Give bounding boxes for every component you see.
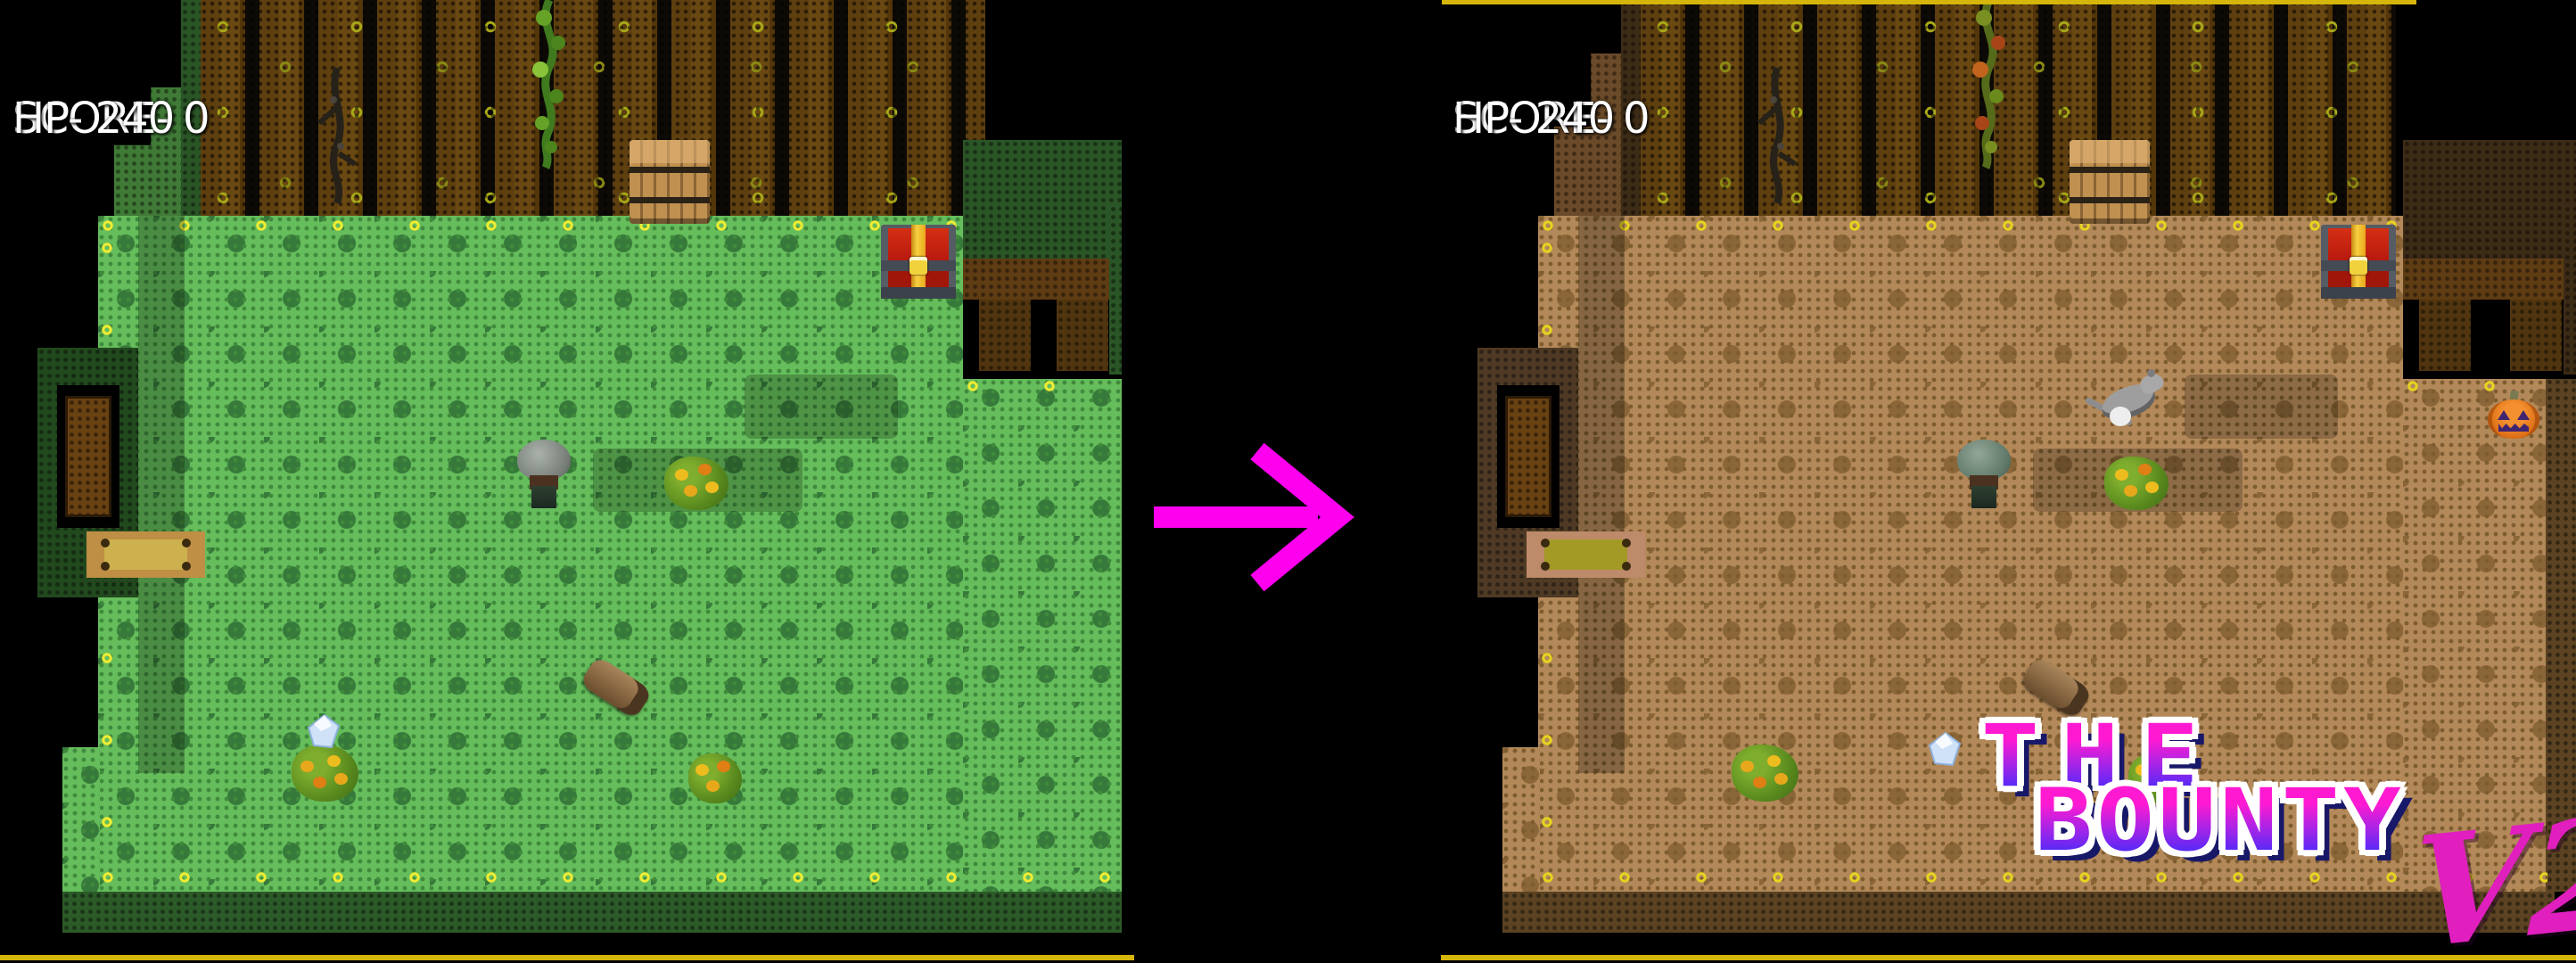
flower-bush-icon: [688, 753, 742, 803]
barrel-icon: [2070, 140, 2150, 224]
flower-bush-icon: [1732, 745, 1798, 802]
door-mat: [1527, 531, 1645, 578]
bottom-accent-line-left: [0, 955, 1134, 960]
flower-bush-icon: [2104, 457, 2169, 510]
player-body: [531, 486, 556, 508]
pumpkin-icon: [2488, 391, 2541, 440]
comparison-scene: SCORE- 0 HP- 240: [0, 0, 2576, 963]
autumn-vine-icon: [1950, 0, 2029, 169]
door: [57, 385, 119, 528]
tilled-soil-patch: [2185, 374, 2338, 439]
treasure-chest-icon: [881, 225, 956, 299]
flower-bush-icon: [292, 745, 358, 802]
floor-bottom-notch: [1502, 747, 1540, 892]
player-body: [1971, 486, 1996, 508]
bottom-accent-line-right: [1441, 955, 2576, 960]
floor-bottom-notch: [62, 747, 100, 892]
player-character: [1957, 440, 2011, 508]
hp-text: HP- 240: [1453, 93, 1614, 145]
crystal-gem-icon: [1924, 731, 1967, 769]
door-mat-center: [104, 539, 187, 570]
floor-dots-top: [100, 218, 974, 234]
tilled-soil-patch: [745, 374, 898, 439]
door-mat: [86, 531, 205, 578]
floor-right-extension: [963, 370, 1122, 892]
player-character: [517, 440, 571, 508]
floor-bottom-border: [1502, 892, 2555, 933]
floor-bottom-border: [62, 892, 1122, 933]
floor-dots-bottom: [100, 870, 1120, 885]
hp-text: HP- 240: [12, 93, 174, 145]
flower-bush-icon: [664, 457, 728, 510]
wall-shadow: [1578, 216, 1625, 773]
floor-dots-top: [1540, 218, 2414, 234]
dead-branch-icon: [292, 64, 377, 207]
door-mat-center: [1544, 539, 1627, 570]
treasure-chest-icon: [2321, 225, 2396, 299]
wall-shadow: [138, 216, 185, 773]
door-panel: [65, 396, 111, 517]
pillar-structure: [963, 140, 1122, 379]
version-label: V2: [2410, 803, 2576, 962]
barrel-icon: [630, 140, 710, 224]
dead-branch-icon: [1732, 64, 1817, 207]
crystal-gem-icon: [303, 713, 346, 751]
pillar-structure: [2403, 140, 2576, 379]
vine-icon: [510, 0, 588, 169]
floor-dots-bottom: [1540, 870, 2547, 885]
floor-left-panel: [98, 216, 976, 892]
door: [1497, 385, 1560, 528]
transform-arrow-icon: [1143, 435, 1357, 613]
door-panel: [1505, 396, 1551, 517]
floor-dots-extension: [965, 379, 1120, 394]
rat-enemy-icon: [2085, 367, 2174, 448]
top-accent-line-right: [1442, 0, 2416, 4]
